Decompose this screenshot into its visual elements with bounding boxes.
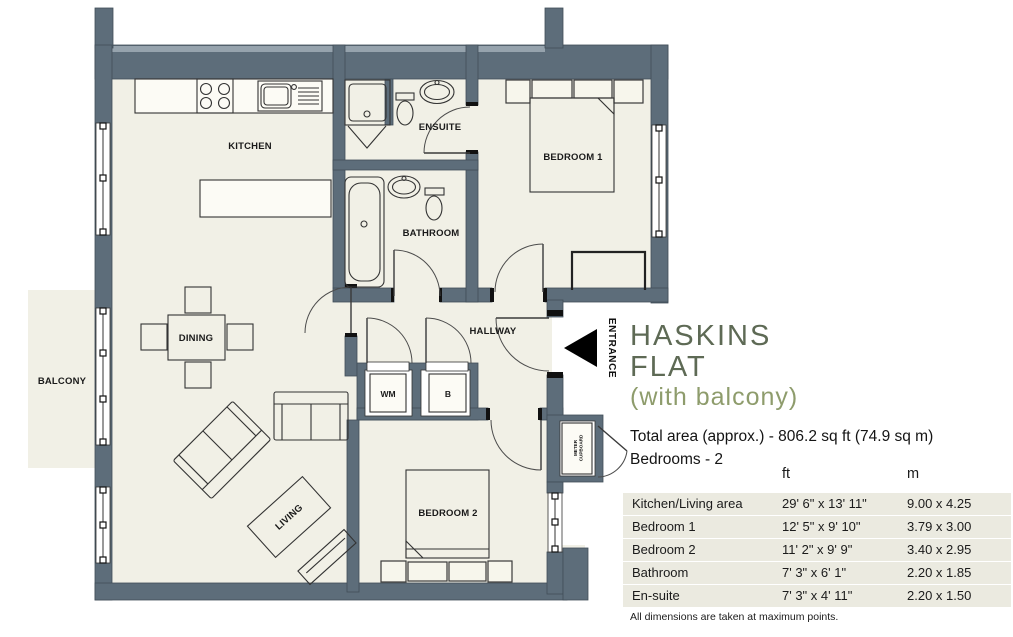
dimensions-table-header: ft m bbox=[623, 466, 1013, 482]
dining-label: DINING bbox=[179, 333, 213, 344]
row-room: Bathroom bbox=[632, 562, 782, 584]
row-ft: 29' 6" x 13' 11" bbox=[782, 493, 907, 515]
row-m: 3.79 x 3.00 bbox=[907, 516, 1011, 538]
entrance-label: ENTRANCE bbox=[606, 318, 617, 378]
row-m: 9.00 x 4.25 bbox=[907, 493, 1011, 515]
b-label: B bbox=[445, 389, 451, 399]
wardrobe bbox=[449, 562, 486, 581]
row-room: Bedroom 1 bbox=[632, 516, 782, 538]
row-m: 2.20 x 1.85 bbox=[907, 562, 1011, 584]
svg-text:METER: METER bbox=[573, 439, 578, 456]
flat-title-line1: HASKINS bbox=[630, 320, 771, 353]
row-room: En-suite bbox=[632, 585, 782, 607]
wall-pier-bottom-right bbox=[563, 548, 588, 600]
kitchen-window bbox=[96, 123, 110, 235]
entrance-arrow-icon bbox=[564, 329, 597, 367]
flat-subtitle: (with balcony) bbox=[630, 383, 798, 412]
wardrobe bbox=[488, 561, 512, 582]
kitchen-label: KITCHEN bbox=[228, 141, 272, 152]
row-ft: 7' 3" x 6' 1" bbox=[782, 562, 907, 584]
wardrobe bbox=[408, 562, 447, 581]
bedroom1-window bbox=[652, 125, 666, 237]
wall-bedroom2-left bbox=[347, 420, 359, 592]
header-m-col: m bbox=[907, 466, 1013, 482]
row-m: 2.20 x 1.50 bbox=[907, 585, 1011, 607]
wall-stub-right bbox=[545, 8, 563, 48]
wardrobe bbox=[381, 561, 406, 582]
row-ft: 11' 2" x 9' 9" bbox=[782, 539, 907, 561]
svg-text:CUPBOARD: CUPBOARD bbox=[579, 434, 584, 461]
living-window bbox=[96, 487, 110, 563]
row-ft: 12' 5" x 9' 10" bbox=[782, 516, 907, 538]
bedroom1-label: BEDROOM 1 bbox=[543, 152, 603, 163]
table-row: En-suite 7' 3" x 4' 11" 2.20 x 1.50 bbox=[623, 585, 1011, 607]
hallway-label: HALLWAY bbox=[470, 326, 517, 337]
bathroom-label: BATHROOM bbox=[403, 228, 460, 239]
table-row: Bathroom 7' 3" x 6' 1" 2.20 x 1.85 bbox=[623, 562, 1011, 584]
row-room: Kitchen/Living area bbox=[632, 493, 782, 515]
floorplan-page: ENTRANCE METER CUPBOARD KITCHEN ENSUITE … bbox=[0, 0, 1013, 637]
row-m: 3.40 x 2.95 bbox=[907, 539, 1011, 561]
wardrobe bbox=[574, 80, 612, 98]
bedroom2-label: BEDROOM 2 bbox=[418, 508, 477, 519]
ensuite-label: ENSUITE bbox=[419, 122, 462, 133]
flat-title-line2: FLAT bbox=[630, 351, 707, 384]
table-row: Kitchen/Living area 29' 6" x 13' 11" 9.0… bbox=[623, 493, 1011, 515]
bedroom2-window bbox=[548, 493, 562, 552]
wardrobe bbox=[532, 80, 572, 98]
wall-stub-left bbox=[95, 8, 113, 48]
row-room: Bedroom 2 bbox=[632, 539, 782, 561]
wall-bottom bbox=[95, 583, 567, 600]
bedside-unit bbox=[506, 80, 530, 103]
balcony-glazing bbox=[96, 308, 110, 445]
dimensions-table: Kitchen/Living area 29' 6" x 13' 11" 9.0… bbox=[623, 493, 1011, 608]
wm-label: WM bbox=[380, 389, 395, 399]
flat-floor bbox=[100, 50, 660, 595]
row-ft: 7' 3" x 4' 11" bbox=[782, 585, 907, 607]
dimensions-footnote: All dimensions are taken at maximum poin… bbox=[630, 611, 838, 623]
entrance-marker: ENTRANCE bbox=[564, 318, 617, 378]
kitchen-island bbox=[200, 180, 331, 217]
table-row: Bedroom 1 12' 5" x 9' 10" 3.79 x 3.00 bbox=[623, 516, 1011, 538]
total-area-text: Total area (approx.) - 806.2 sq ft (74.9… bbox=[630, 428, 933, 446]
header-ft-col: ft bbox=[782, 466, 907, 482]
balcony-label: BALCONY bbox=[38, 376, 87, 387]
header-room-col bbox=[632, 466, 782, 482]
bedside-unit bbox=[614, 80, 643, 103]
table-row: Bedroom 2 11' 2" x 9' 9" 3.40 x 2.95 bbox=[623, 539, 1011, 561]
